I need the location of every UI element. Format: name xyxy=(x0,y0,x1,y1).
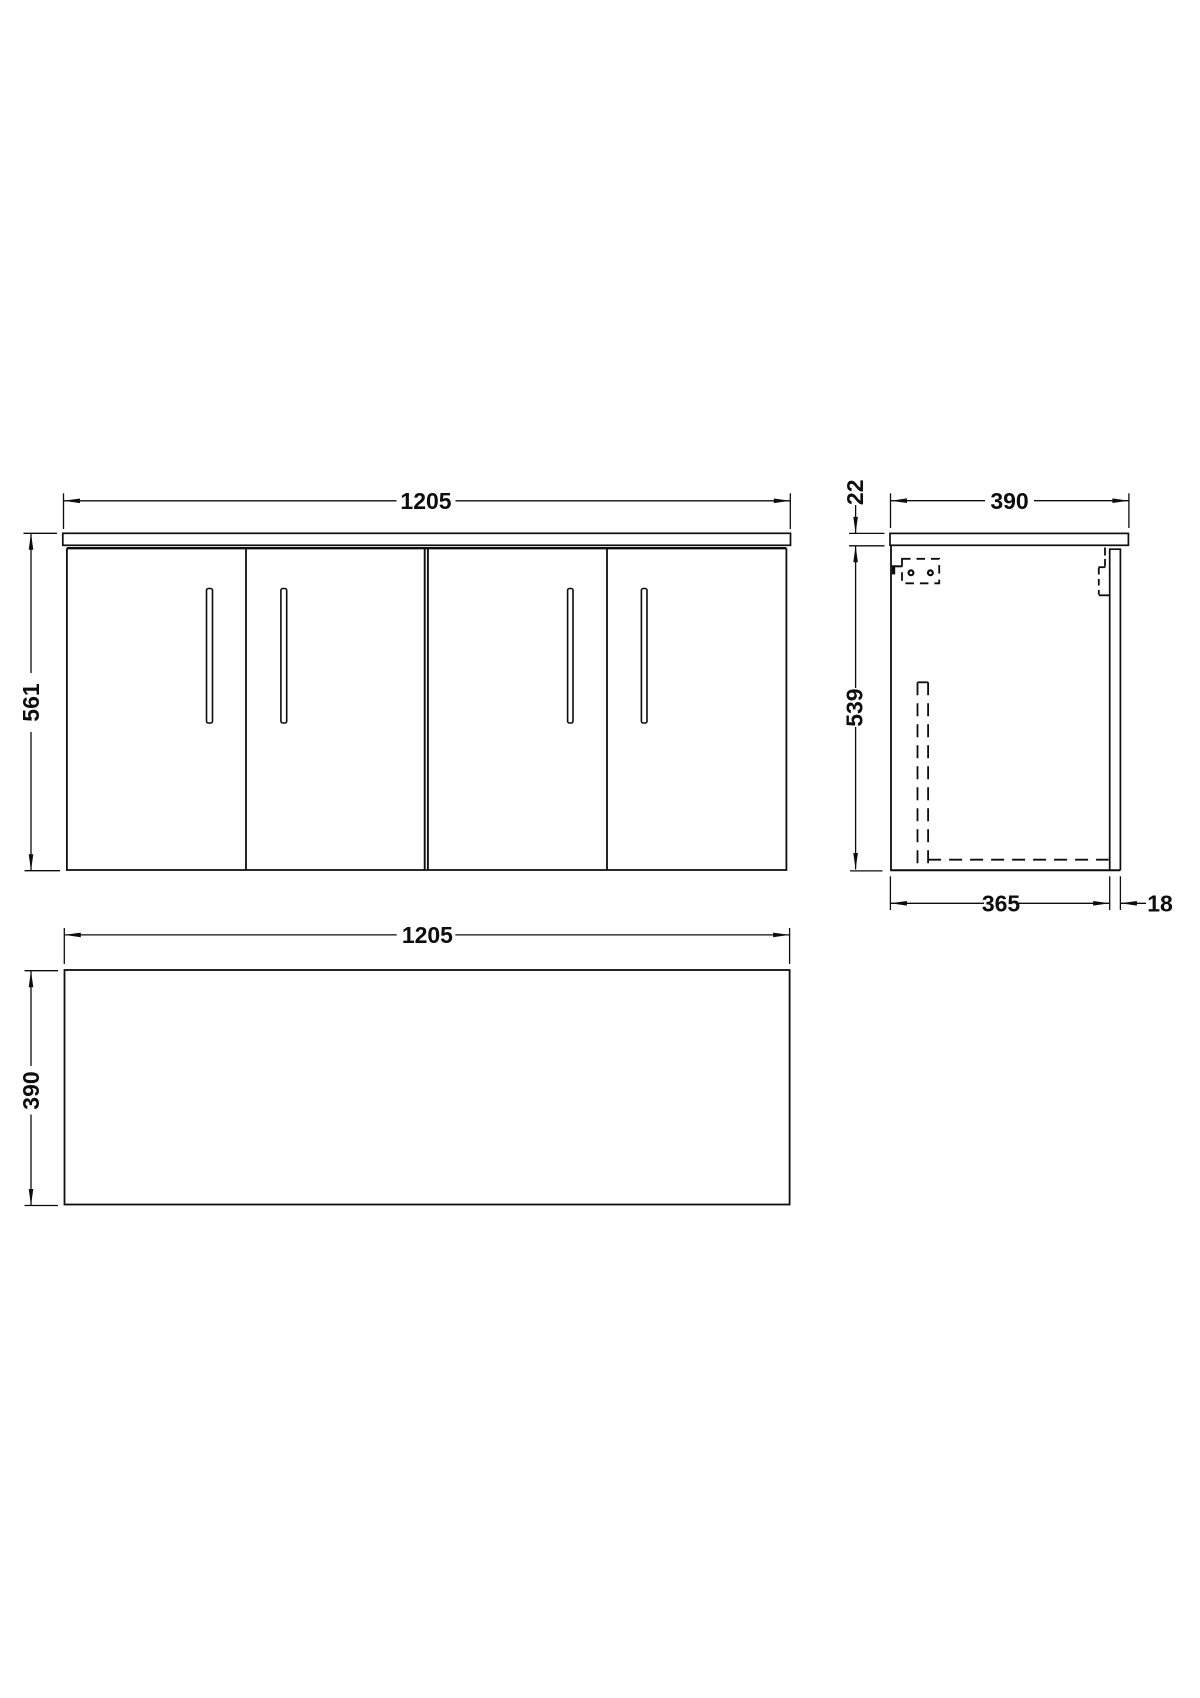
svg-text:365: 365 xyxy=(982,890,1021,916)
svg-text:22: 22 xyxy=(842,480,868,506)
svg-text:1205: 1205 xyxy=(400,488,451,514)
svg-text:390: 390 xyxy=(990,488,1028,514)
svg-text:1205: 1205 xyxy=(402,922,453,948)
svg-text:390: 390 xyxy=(18,1071,44,1109)
svg-text:18: 18 xyxy=(1147,890,1173,916)
svg-text:561: 561 xyxy=(18,683,44,722)
svg-text:539: 539 xyxy=(842,688,868,726)
